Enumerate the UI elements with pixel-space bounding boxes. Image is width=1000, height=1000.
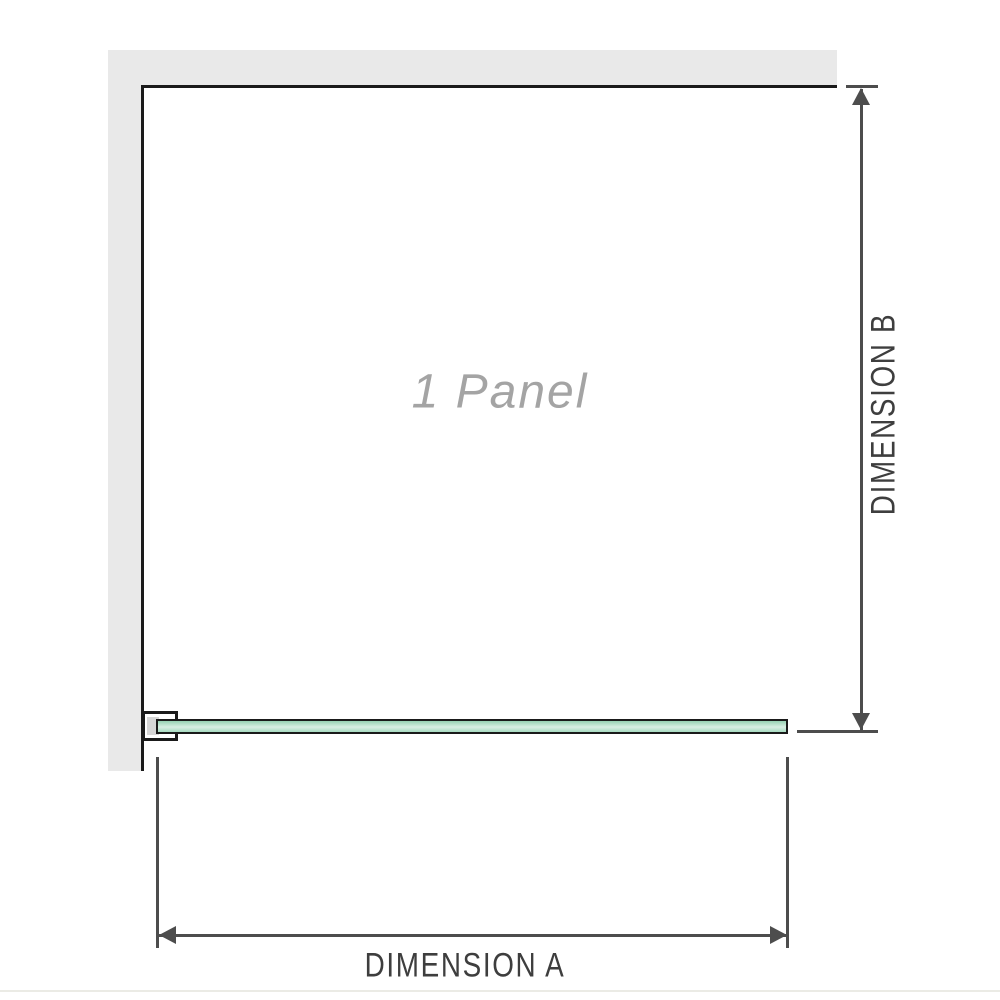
dimension-a-line <box>158 934 788 937</box>
wall-top-strip <box>108 50 837 86</box>
panel-count-label: 1 Panel <box>412 365 589 420</box>
panel-outline-top-edge <box>141 85 837 88</box>
arrow-down-icon <box>852 713 870 730</box>
panel-dimension-diagram: 1 Panel DIMENSION B DIMENSION A <box>0 0 1000 1000</box>
panel-outline-left-edge <box>141 85 144 771</box>
arrow-right-icon <box>770 926 787 944</box>
glass-panel-bar <box>156 719 788 734</box>
dimension-b-line <box>860 89 863 730</box>
dimension-a-right-extension <box>786 757 789 948</box>
footer-divider-line <box>0 990 1000 992</box>
arrow-left-icon <box>159 926 176 944</box>
arrow-up-icon <box>852 88 870 105</box>
dimension-b-label: DIMENSION B <box>865 313 904 515</box>
dimension-a-left-extension <box>156 757 159 948</box>
dimension-a-label: DIMENSION A <box>365 947 566 986</box>
wall-left-strip <box>108 50 141 771</box>
